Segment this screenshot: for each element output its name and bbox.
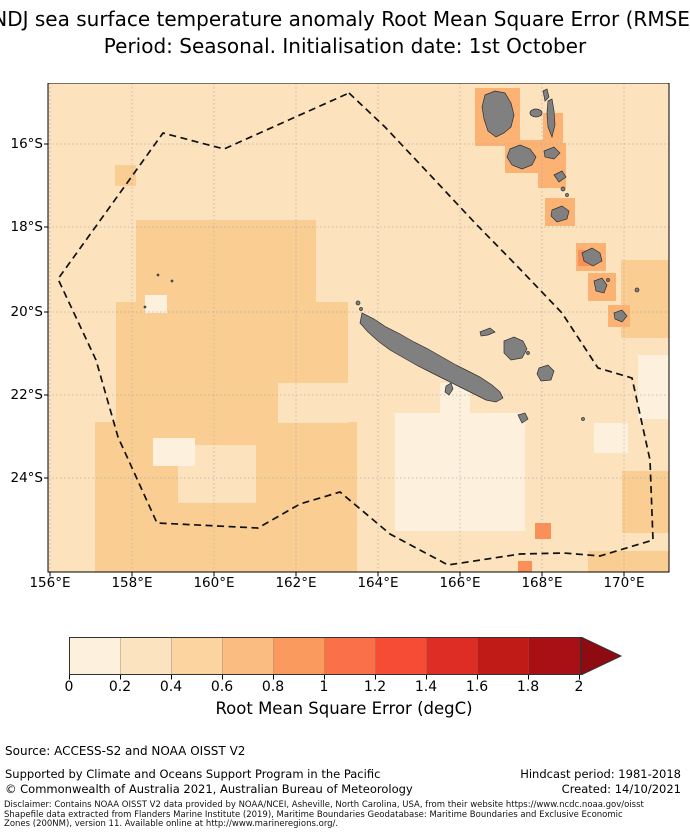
xtick-168e: 168°E	[518, 575, 566, 591]
figure-page: NDJ sea surface temperature anomaly Root…	[0, 0, 690, 839]
reef-dot	[144, 306, 146, 308]
cbar-tick-06: 0.6	[202, 679, 242, 696]
ytick-22s: 22°S	[0, 387, 43, 403]
xtick-166e: 166°E	[436, 575, 484, 591]
ytick-24s: 24°S	[0, 470, 43, 486]
xtick-158e: 158°E	[108, 575, 156, 591]
colorbar-segment	[325, 638, 376, 674]
supported-by-credit: Supported by Climate and Oceans Support …	[5, 767, 380, 781]
colorbar-segment	[172, 638, 223, 674]
colorbar	[69, 637, 581, 675]
copyright-line: © Commonwealth of Australia 2021, Austra…	[5, 782, 413, 796]
colorbar-segment	[70, 638, 121, 674]
xtick-170e: 170°E	[600, 575, 648, 591]
cbar-tick-08: 0.8	[253, 679, 293, 696]
colorbar-segment	[121, 638, 172, 674]
colorbar-segment	[478, 638, 529, 674]
cbar-tick-16: 1.6	[457, 679, 497, 696]
cbar-tick-04: 0.4	[151, 679, 191, 696]
xtick-164e: 164°E	[354, 575, 402, 591]
colorbar-segment	[529, 638, 580, 674]
island-aniwa	[607, 279, 610, 282]
island-tiga	[527, 352, 530, 355]
island-ambae	[530, 109, 542, 117]
cbar-tick-14: 1.4	[406, 679, 446, 696]
cbar-tick-02: 0.2	[100, 679, 140, 696]
figure-subtitle: Period: Seasonal. Initialisation date: 1…	[0, 33, 690, 60]
colorbar-extend-arrow	[581, 637, 623, 675]
island-belep	[356, 301, 360, 305]
xtick-162e: 162°E	[272, 575, 320, 591]
reef-dot	[157, 274, 159, 276]
xtick-160e: 160°E	[190, 575, 238, 591]
disclaimer-line-3: Zones (200NM), version 11. Available onl…	[4, 820, 644, 830]
colorbar-label: Root Mean Square Error (degC)	[144, 699, 544, 718]
ytick-18s: 18°S	[0, 219, 43, 235]
cbar-tick-2: 2	[559, 679, 599, 696]
figure-title-block: NDJ sea surface temperature anomaly Root…	[0, 6, 690, 60]
ytick-16s: 16°S	[0, 136, 43, 152]
cbar-tick-18: 1.8	[508, 679, 548, 696]
ytick-20s: 20°S	[0, 304, 43, 320]
island-futuna	[635, 288, 639, 292]
colorbar-segment	[427, 638, 478, 674]
source-credit: Source: ACCESS-S2 and NOAA OISST V2	[5, 744, 245, 758]
xtick-156e: 156°E	[26, 575, 74, 591]
colorbar-segment	[223, 638, 274, 674]
hindcast-period: Hindcast period: 1981-2018	[520, 767, 681, 781]
cbar-tick-0: 0	[49, 679, 89, 696]
cbar-tick-1: 1	[304, 679, 344, 696]
map-canvas	[44, 83, 673, 580]
cbar-tick-12: 1.2	[355, 679, 395, 696]
island-walpole	[582, 418, 585, 421]
colorbar-segment	[376, 638, 427, 674]
colorbar-segment	[274, 638, 325, 674]
island-shepherd	[561, 187, 565, 191]
disclaimer-block: Disclaimer: Contains NOAA OISST V2 data …	[4, 801, 644, 830]
figure-title: NDJ sea surface temperature anomaly Root…	[0, 6, 690, 33]
created-date: Created: 14/10/2021	[562, 782, 681, 796]
reef-dot	[171, 280, 173, 282]
